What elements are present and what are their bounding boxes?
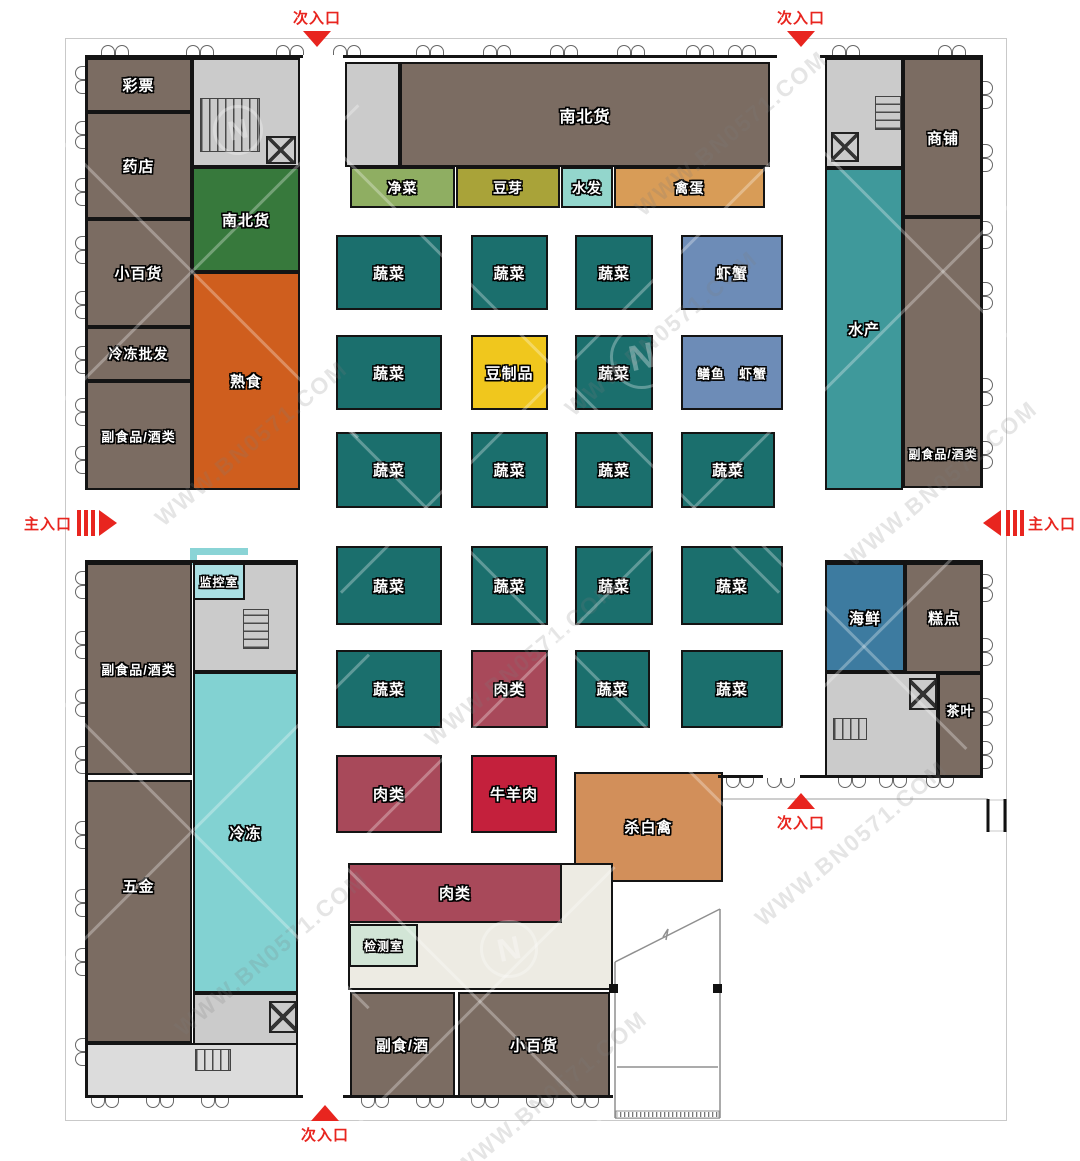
- secondary-entrance-right-label: 次入口: [777, 812, 825, 833]
- door-arc-icon: [101, 45, 129, 55]
- room-veg-r2c1: 蔬菜: [336, 335, 442, 410]
- door-arc-icon: [416, 45, 444, 55]
- clean-vegetables-label: 净菜: [388, 178, 418, 198]
- room-aquatic-products: 水产: [825, 168, 903, 490]
- stairs-icon: [195, 1049, 231, 1071]
- seafood-label: 海鲜: [849, 607, 881, 628]
- door-arc-icon: [926, 778, 954, 788]
- room-lobby-bottom-left: [85, 1043, 298, 1097]
- door-arc-icon: [75, 121, 85, 149]
- veg-r4c4-label: 蔬菜: [716, 575, 748, 596]
- entrance-bars-icon: [75, 510, 96, 536]
- room-meat-r6c1: 肉类: [336, 755, 442, 833]
- room-entry-room-top: [345, 62, 400, 167]
- room-general-store-left: 小百货: [85, 219, 192, 327]
- door-arc-icon: [75, 178, 85, 206]
- door-arc-icon: [75, 689, 85, 717]
- main-entrance-right: 主入口: [983, 510, 1076, 536]
- room-north-south-goods-small: 南北货: [192, 167, 300, 272]
- nonstaple-liquor-right-label: 副食品/酒类: [908, 445, 977, 462]
- door-arc-icon: [75, 236, 85, 264]
- nonstaple-liquor-left-lower-label: 副食品/酒类: [101, 660, 176, 679]
- veg-r4c2-label: 蔬菜: [493, 575, 525, 596]
- room-general-store-bottom: 小百货: [458, 992, 610, 1098]
- room-monitor-room: 监控室: [193, 563, 245, 600]
- meat-bottom-label: 肉类: [439, 883, 471, 904]
- room-veg-r1c1: 蔬菜: [336, 235, 442, 310]
- shops-label: 商铺: [927, 127, 959, 148]
- wall-segment: [85, 560, 88, 1098]
- hardware-label: 五金: [122, 875, 154, 896]
- secondary-entrance-top-right: 次入口: [777, 7, 825, 47]
- wall-segment: [85, 1095, 303, 1098]
- room-veg-r3c3: 蔬菜: [575, 432, 653, 508]
- door-arc-icon: [526, 1098, 554, 1108]
- outdoor-ramp: [615, 909, 720, 1118]
- wall-segment: [980, 563, 983, 778]
- door-arc-icon: [75, 821, 85, 849]
- veg-r4c1-label: 蔬菜: [373, 575, 405, 596]
- stairs-icon: [833, 718, 867, 740]
- door-arc-icon: [91, 1098, 119, 1108]
- door-arc-icon: [983, 638, 993, 666]
- door-arc-icon: [983, 698, 993, 726]
- room-seafood: 海鲜: [825, 563, 905, 672]
- entrance-arrow-icon: [311, 1105, 339, 1121]
- door-arc-icon: [983, 378, 993, 406]
- testing-room-label: 检测室: [364, 937, 403, 954]
- room-veg-r4c3: 蔬菜: [575, 546, 653, 625]
- veg-r5c1-label: 蔬菜: [373, 679, 405, 700]
- door-arc-icon: [832, 45, 860, 55]
- door-arc-icon: [550, 45, 578, 55]
- soaked-goods-label: 水发: [572, 178, 602, 198]
- wall-segment: [85, 55, 303, 58]
- room-veg-r1c3: 蔬菜: [575, 235, 653, 310]
- entrance-arrow-icon: [303, 31, 331, 47]
- room-pharmacy: 药店: [85, 112, 192, 219]
- room-meat-bottom: 肉类: [348, 863, 562, 923]
- door-arc-icon: [983, 574, 993, 602]
- elevator-icon: [269, 1001, 297, 1033]
- meat-r5c2-label: 肉类: [493, 679, 525, 700]
- veg-r2c1-label: 蔬菜: [373, 362, 405, 383]
- wall-segment: [343, 55, 777, 58]
- main-entrance-left: 主入口: [24, 510, 117, 536]
- entrance-arrow-icon: [99, 510, 117, 536]
- door-arc-icon: [879, 778, 907, 788]
- elevator-icon: [266, 136, 296, 164]
- room-nonstaple-liquor-left-lower: 副食品/酒类: [85, 563, 192, 775]
- room-tea: 茶叶: [938, 673, 983, 778]
- room-shrimp-crab: 虾蟹: [681, 235, 783, 310]
- veg-r3c1-label: 蔬菜: [373, 460, 405, 481]
- door-arc-icon: [361, 1098, 389, 1108]
- door-arc-icon: [471, 1098, 499, 1108]
- veg-r5c3-label: 蔬菜: [596, 679, 628, 700]
- door-arc-icon: [617, 45, 645, 55]
- wall-segment: [820, 55, 983, 58]
- door-arc-icon: [728, 45, 756, 55]
- veg-r5c4-label: 蔬菜: [716, 679, 748, 700]
- room-lobby-right: [825, 672, 938, 778]
- wall-segment: [980, 55, 983, 488]
- door-arc-icon: [75, 631, 85, 659]
- elevator-icon: [909, 678, 937, 710]
- watermark-line: [14, 654, 369, 1009]
- stairs-icon: [243, 609, 269, 649]
- market-floor-plan: 彩票药店小百货冷冻批发副食品/酒类南北货熟食南北货净菜豆芽水发禽蛋水产商铺副食品…: [0, 0, 1080, 1161]
- room-veg-r1c2: 蔬菜: [471, 235, 548, 310]
- door-arc-icon: [75, 398, 85, 426]
- north-south-goods-main-label: 南北货: [559, 103, 610, 127]
- veg-r1c1-label: 蔬菜: [373, 262, 405, 283]
- door-arc-icon: [75, 66, 85, 94]
- room-veg-r3c2: 蔬菜: [471, 432, 548, 508]
- room-stairwell-top-left: [192, 58, 300, 167]
- room-eel-shrimp-crab: 鳝鱼 虾蟹: [681, 335, 783, 410]
- door-arc-icon: [201, 1098, 229, 1108]
- entrance-arrow-icon: [787, 793, 815, 809]
- main-entrance-right-label: 主入口: [1028, 513, 1076, 534]
- general-store-left-label: 小百货: [114, 263, 162, 284]
- room-meat-r5c2: 肉类: [471, 650, 548, 728]
- room-testing-room: 检测室: [349, 924, 418, 967]
- room-poultry-eggs: 禽蛋: [614, 167, 765, 208]
- room-veg-r4c2: 蔬菜: [471, 546, 548, 625]
- beef-mutton-label: 牛羊肉: [490, 784, 538, 805]
- wall-segment: [85, 560, 298, 563]
- general-store-bottom-label: 小百货: [510, 1035, 558, 1056]
- entrance-bars-icon: [1004, 510, 1025, 536]
- frozen-wholesale-label: 冷冻批发: [109, 344, 169, 364]
- room-veg-r4c1: 蔬菜: [336, 546, 442, 625]
- cooked-food-label: 熟食: [230, 371, 262, 392]
- door-arc-icon: [983, 144, 993, 172]
- room-beef-mutton: 牛羊肉: [471, 755, 557, 833]
- room-frozen-wholesale: 冷冻批发: [85, 327, 192, 381]
- room-shops: 商铺: [903, 58, 983, 217]
- room-soaked-goods: 水发: [561, 167, 613, 208]
- room-frozen: 冷冻: [193, 672, 298, 993]
- nonstaple-liquor-bottom-label: 副食/酒: [376, 1035, 429, 1056]
- door-arc-icon: [983, 282, 993, 310]
- frozen-label: 冷冻: [229, 822, 261, 843]
- door-arc-icon: [186, 45, 214, 55]
- main-entrance-left-label: 主入口: [24, 513, 72, 534]
- door-arc-icon: [146, 1098, 174, 1108]
- stairs-icon: [200, 98, 260, 152]
- room-veg-r4c4: 蔬菜: [681, 546, 783, 625]
- entrance-arrow-icon: [983, 510, 1001, 536]
- room-north-south-goods-main: 南北货: [400, 62, 770, 167]
- door-arc-icon: [938, 45, 966, 55]
- poultry-eggs-label: 禽蛋: [675, 178, 705, 198]
- bean-products-label: 豆制品: [485, 362, 533, 383]
- veg-r3c3-label: 蔬菜: [598, 460, 630, 481]
- tea-label: 茶叶: [946, 701, 974, 720]
- door-arc-icon: [571, 1098, 599, 1108]
- door-arc-icon: [838, 778, 866, 788]
- entrance-arrow-icon: [787, 31, 815, 47]
- door-arc-icon: [75, 571, 85, 599]
- door-arc-icon: [75, 889, 85, 917]
- watermark-text: WWW.BN0571.COM: [750, 755, 953, 932]
- door-arc-icon: [75, 1038, 85, 1066]
- meat-r6c1-label: 肉类: [373, 784, 405, 805]
- monitor-room-label: 监控室: [199, 573, 238, 590]
- bean-sprouts-label: 豆芽: [493, 178, 523, 198]
- door-arc-icon: [983, 81, 993, 109]
- room-nonstaple-liquor-right: 副食品/酒类: [903, 217, 983, 488]
- room-veg-r2c3: 蔬菜: [575, 335, 653, 410]
- watermark-line: [14, 654, 369, 1009]
- secondary-entrance-bottom-label: 次入口: [301, 1124, 349, 1145]
- stairs-icon: [875, 96, 901, 130]
- secondary-entrance-top-right-label: 次入口: [777, 7, 825, 28]
- wall-segment: [800, 775, 983, 778]
- monitor-room-duct: [190, 548, 248, 555]
- aquatic-products-label: 水产: [848, 319, 880, 340]
- door-arc-icon: [75, 346, 85, 374]
- eel-shrimp-crab-label: 鳝鱼 虾蟹: [697, 363, 767, 382]
- pharmacy-label: 药店: [122, 155, 154, 176]
- door-arc-icon: [983, 441, 993, 469]
- wall-segment: [718, 775, 763, 778]
- room-nonstaple-liquor-bottom: 副食/酒: [350, 992, 455, 1098]
- room-veg-r5c1: 蔬菜: [336, 650, 442, 728]
- door-arc-icon: [483, 45, 511, 55]
- veg-r3c4-label: 蔬菜: [712, 460, 744, 481]
- door-arc-icon: [75, 446, 85, 474]
- room-clean-vegetables: 净菜: [350, 167, 455, 208]
- pastry-label: 糕点: [928, 608, 960, 629]
- room-bean-products: 豆制品: [471, 335, 548, 410]
- room-nonstaple-liquor-left-upper: 副食品/酒类: [85, 381, 192, 490]
- secondary-entrance-right: 次入口: [777, 793, 825, 833]
- room-pastry: 糕点: [905, 563, 983, 673]
- secondary-entrance-top-left-label: 次入口: [293, 7, 341, 28]
- wall-segment: [825, 560, 983, 563]
- veg-r1c3-label: 蔬菜: [598, 262, 630, 283]
- room-veg-r5c4: 蔬菜: [681, 650, 783, 728]
- secondary-entrance-bottom: 次入口: [301, 1105, 349, 1145]
- slaughtered-poultry-label: 杀白禽: [624, 817, 672, 838]
- door-arc-icon: [75, 948, 85, 976]
- door-arc-icon: [416, 1098, 444, 1108]
- room-hardware: 五金: [85, 780, 192, 1043]
- door-arc-icon: [75, 746, 85, 774]
- room-veg-r3c4: 蔬菜: [681, 432, 775, 508]
- room-veg-r5c3: 蔬菜: [575, 650, 650, 728]
- wall-segment: [343, 1095, 613, 1098]
- veg-r1c2-label: 蔬菜: [493, 262, 525, 283]
- room-stairwell-bottom-left: [193, 993, 298, 1045]
- lottery-label: 彩票: [122, 75, 154, 96]
- veg-r4c3-label: 蔬菜: [598, 575, 630, 596]
- room-cooked-food: 熟食: [192, 272, 300, 490]
- north-south-goods-small-label: 南北货: [222, 209, 270, 230]
- elevator-icon: [831, 132, 859, 162]
- shrimp-crab-label: 虾蟹: [716, 262, 748, 283]
- room-bean-sprouts: 豆芽: [456, 167, 560, 208]
- door-arc-icon: [983, 221, 993, 249]
- door-arc-icon: [75, 291, 85, 319]
- room-lottery: 彩票: [85, 58, 192, 112]
- door-arc-icon: [767, 778, 795, 788]
- room-veg-r3c1: 蔬菜: [336, 432, 442, 508]
- room-stairwell-top-right: [825, 58, 903, 168]
- veg-r3c2-label: 蔬菜: [493, 460, 525, 481]
- door-arc-icon: [983, 741, 993, 769]
- wall-segment: [85, 55, 88, 490]
- door-arc-icon: [726, 778, 754, 788]
- nonstaple-liquor-left-upper-label: 副食品/酒类: [101, 426, 176, 445]
- door-arc-icon: [686, 45, 714, 55]
- veg-r2c3-label: 蔬菜: [598, 362, 630, 383]
- secondary-entrance-top-left: 次入口: [293, 7, 341, 47]
